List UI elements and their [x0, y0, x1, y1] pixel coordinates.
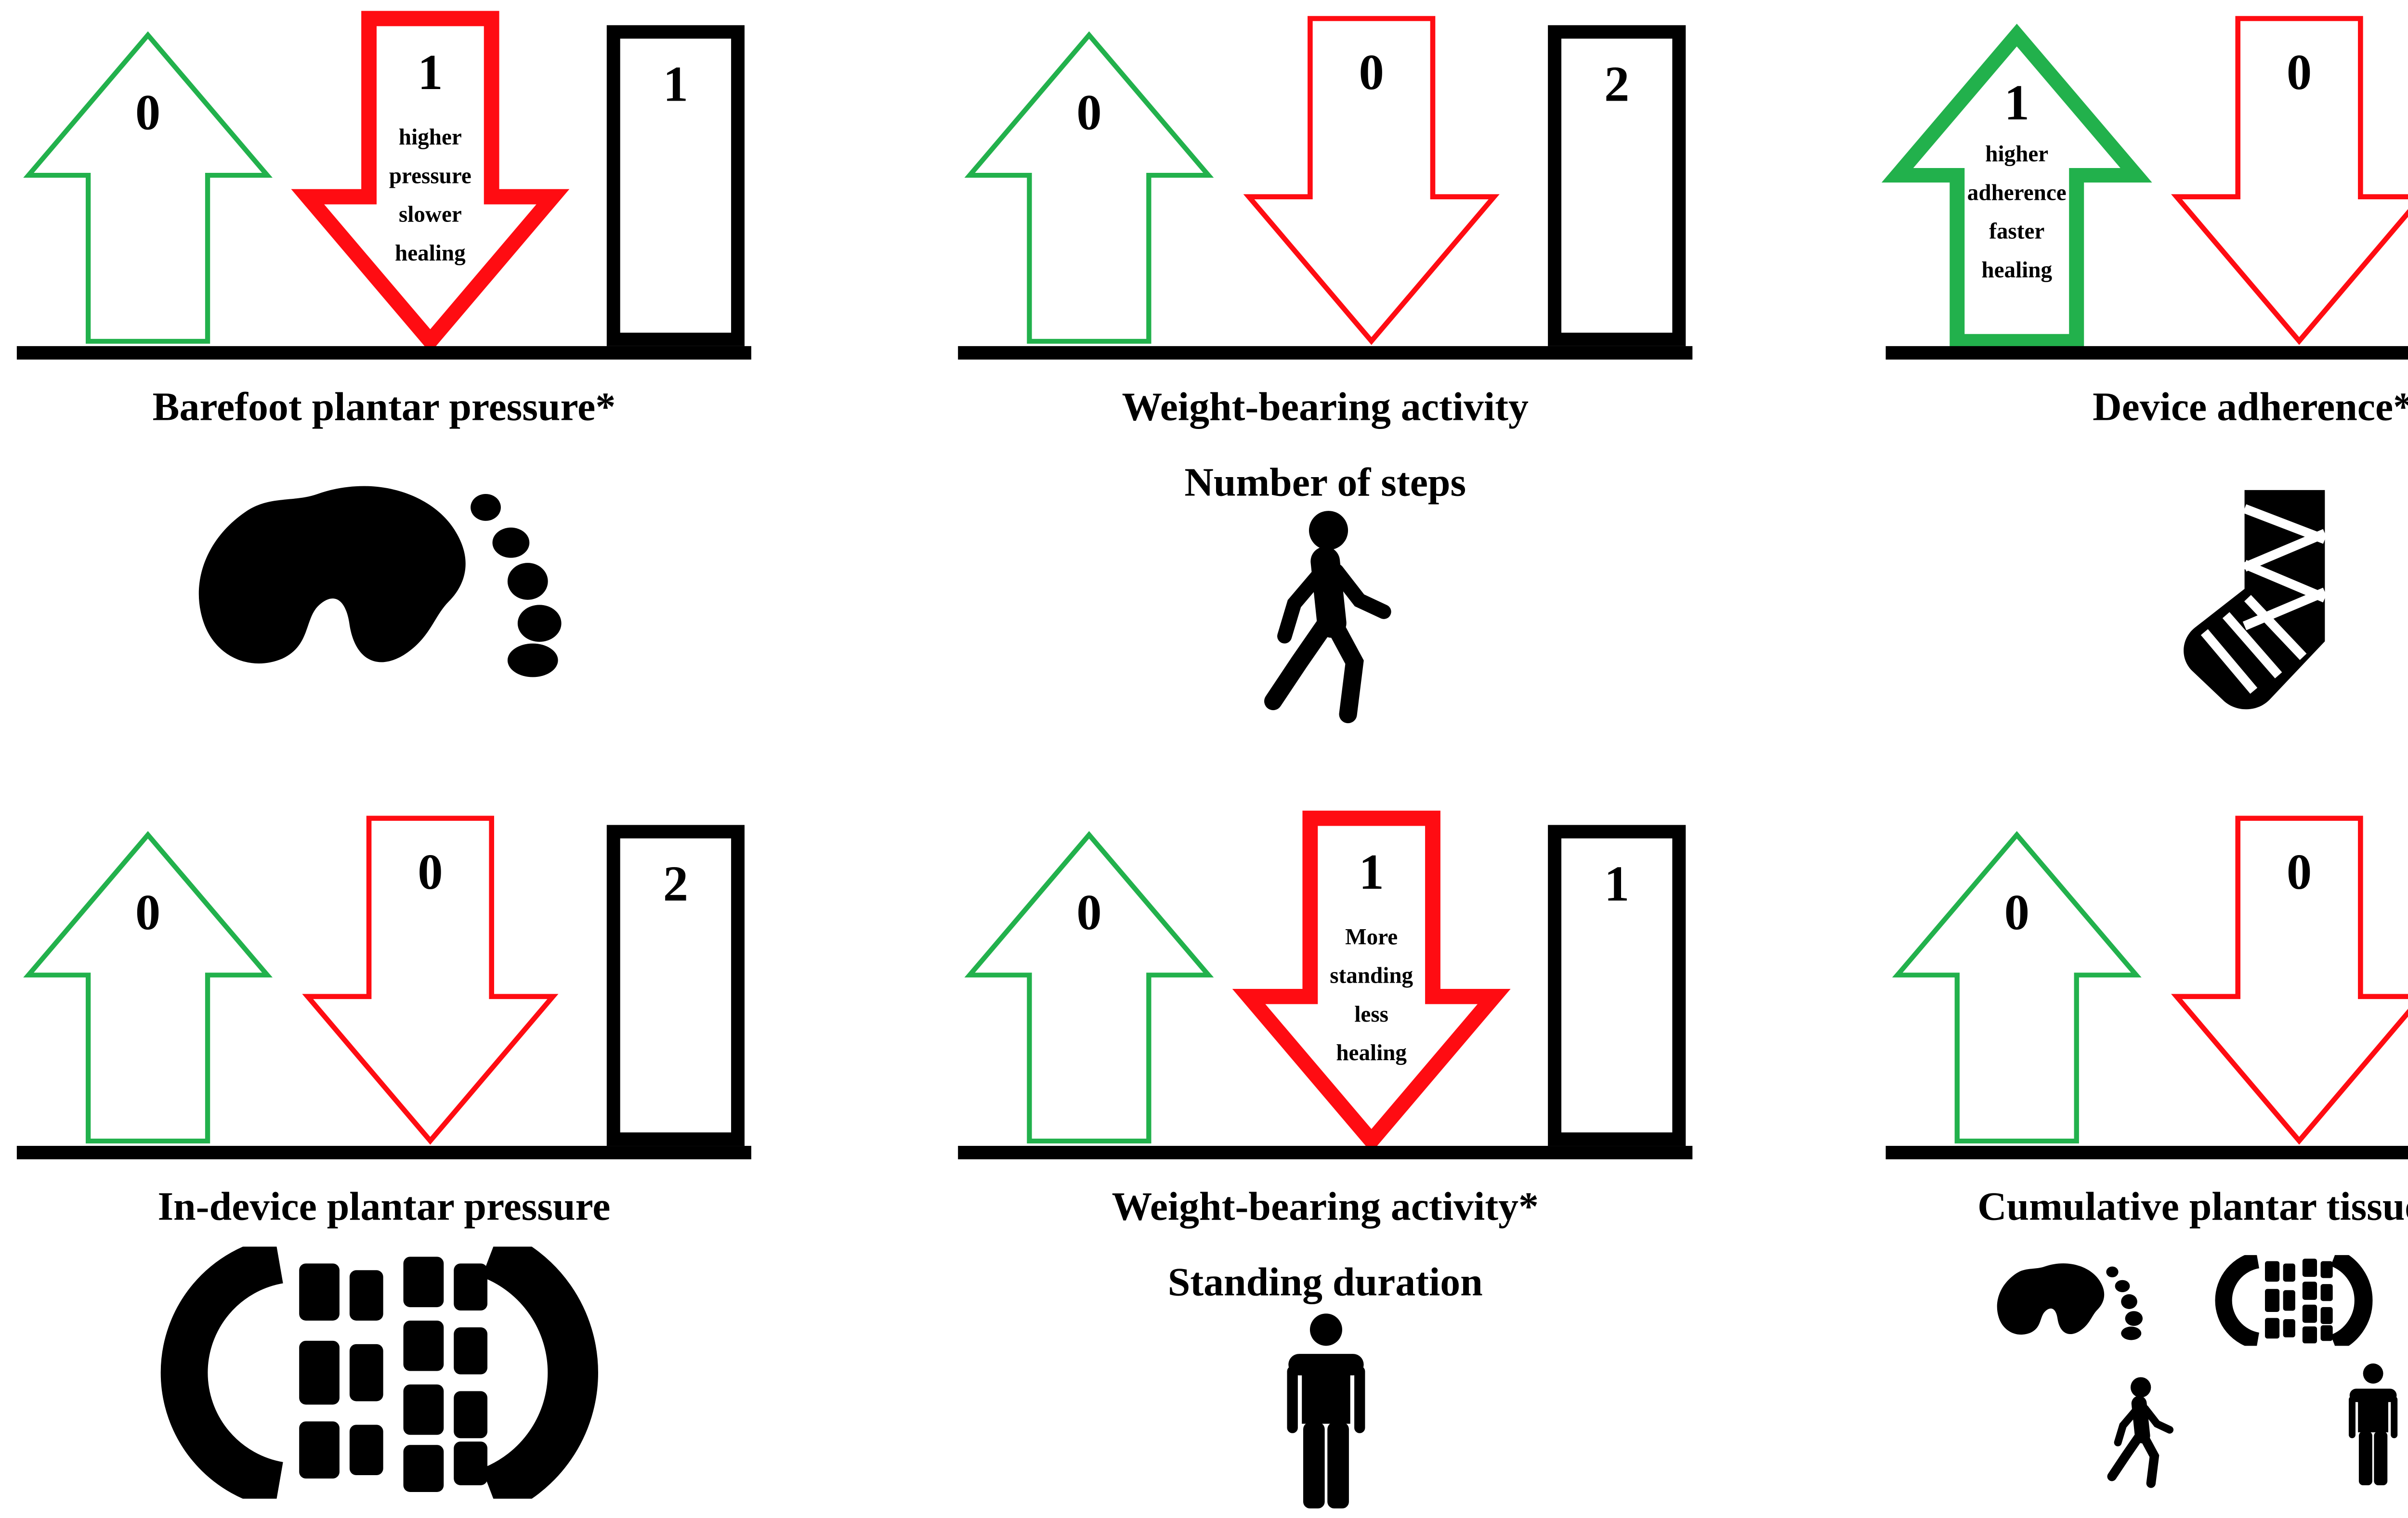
caption-line: In-device plantar pressure: [17, 1183, 751, 1233]
panel-weight-bearing-activity-standing: 0 1 More standing less healing 1 Weight-…: [958, 803, 1692, 1514]
caption-line: Barefoot plantar pressure*: [17, 383, 751, 434]
down-arrow-count: 1: [1243, 847, 1499, 901]
panel-caption: Cumulative plantar tissue stress: [1886, 1183, 2408, 1233]
up-arrow-count: 0: [24, 887, 272, 941]
better-healing-up-arrow: 0: [965, 830, 1213, 1146]
up-arrow-count: 0: [965, 87, 1213, 141]
shoe-print-icon: [2201, 1254, 2389, 1345]
note-line: adherence: [1893, 173, 2141, 211]
shoe-print-icon: [124, 1246, 645, 1498]
box-count: 2: [620, 858, 731, 912]
note-line: less: [1243, 995, 1499, 1033]
down-arrow-count: 0: [302, 847, 558, 901]
panel-barefoot-plantar-pressure: 0 1 higher pressure slower healing 1 Bar…: [17, 3, 751, 679]
arrow-zone: 1 higher adherence faster healing 0 1: [1886, 3, 2408, 360]
note-line: higher: [1893, 134, 2141, 173]
worse-healing-down-arrow: 0: [1243, 13, 1499, 346]
standing-person-icon: [1271, 1312, 1379, 1514]
no-association-box: 1: [607, 25, 745, 346]
activity-icons-row: [2099, 1362, 2407, 1489]
better-healing-up-arrow: 0: [1893, 830, 2141, 1146]
no-association-box: 2: [1548, 25, 1686, 346]
panel-cumulative-plantar-tissue-stress: 0 0 1 Cumulative plantar tissue stress: [1886, 803, 2408, 1489]
arrow-zone: 0 0 2: [17, 803, 751, 1159]
evidence-summary-figure: 0 1 higher pressure slower healing 1 Bar…: [0, 0, 2408, 1517]
up-arrow-icon: [1893, 830, 2141, 1146]
caption-line: Weight-bearing activity*: [958, 1183, 1692, 1233]
icon-area: [958, 509, 1692, 724]
worse-healing-down-arrow: 0: [2172, 13, 2408, 346]
box-count: 1: [1561, 858, 1672, 912]
up-arrow-count: 0: [1893, 887, 2141, 941]
panel-caption: In-device plantar pressure: [17, 1183, 751, 1233]
icon-area: [1886, 1243, 2408, 1489]
bandaged-foot-cast-icon: [2176, 484, 2330, 713]
note-line: healing: [302, 234, 558, 272]
up-arrow-note: higher adherence faster healing: [1893, 134, 2141, 289]
note-line: faster: [1893, 212, 2141, 250]
better-healing-up-arrow: 0: [24, 30, 272, 346]
no-association-box: 2: [607, 825, 745, 1146]
icon-area: [17, 1246, 751, 1498]
note-line: higher: [302, 117, 558, 156]
stress-source-icons-row: [1991, 1243, 2408, 1356]
down-arrow-count: 1: [302, 47, 558, 101]
no-association-box: 1: [1548, 825, 1686, 1146]
better-healing-up-arrow: 0: [965, 30, 1213, 346]
barefoot-print-icon: [186, 474, 581, 679]
icon-area: [1886, 484, 2408, 713]
better-healing-up-arrow: 1 higher adherence faster healing: [1893, 30, 2141, 346]
down-arrow-note: More standing less healing: [1243, 917, 1499, 1072]
note-line: healing: [1893, 250, 2141, 289]
panel-caption: Weight-bearing activity* Standing durati…: [958, 1183, 1692, 1309]
up-arrow-count: 0: [965, 887, 1213, 941]
baseline: [17, 346, 751, 360]
up-arrow-icon: [24, 30, 272, 346]
icon-area: [958, 1312, 1692, 1514]
baseline: [17, 1146, 751, 1159]
standing-person-icon: [2340, 1362, 2407, 1489]
panel-caption: Barefoot plantar pressure*: [17, 383, 751, 434]
down-arrow-count: 0: [1243, 47, 1499, 101]
arrow-zone: 0 1 higher pressure slower healing 1: [17, 3, 751, 360]
worse-healing-down-arrow: 1 higher pressure slower healing: [302, 13, 558, 346]
baseline: [958, 346, 1692, 360]
panel-device-adherence: 1 higher adherence faster healing 0 1 De…: [1886, 3, 2408, 713]
panel-caption: Weight-bearing activity Number of steps: [958, 383, 1692, 509]
better-healing-up-arrow: 0: [24, 830, 272, 1146]
down-arrow-note: higher pressure slower healing: [302, 117, 558, 272]
figure-canvas: 0 1 higher pressure slower healing 1 Bar…: [0, 0, 2408, 1518]
panel-in-device-plantar-pressure: 0 0 2 In-device plantar pressure: [17, 803, 751, 1499]
caption-line: Weight-bearing activity: [958, 383, 1692, 434]
caption-line: Number of steps: [958, 459, 1692, 509]
arrow-zone: 0 1 More standing less healing 1: [958, 803, 1692, 1159]
box-count: 2: [1561, 59, 1672, 113]
caption-line: Standing duration: [958, 1259, 1692, 1309]
up-arrow-icon: [965, 30, 1213, 346]
baseline: [958, 1146, 1692, 1159]
note-line: pressure: [302, 156, 558, 195]
caption-line: Device adherence*: [1886, 383, 2408, 434]
note-line: standing: [1243, 956, 1499, 995]
up-arrow-count: 0: [24, 87, 272, 141]
walking-person-icon: [2099, 1376, 2180, 1489]
note-line: healing: [1243, 1033, 1499, 1072]
arrow-zone: 0 0 1: [1886, 803, 2408, 1159]
up-arrow-icon: [965, 830, 1213, 1146]
panel-weight-bearing-activity-steps: 0 0 2 Weight-bearing activity Number of …: [958, 3, 1692, 724]
box-count: 1: [620, 59, 731, 113]
arrow-zone: 0 0 2: [958, 3, 1692, 360]
baseline: [1886, 1146, 2408, 1159]
panel-caption: Device adherence*: [1886, 383, 2408, 434]
down-arrow-count: 0: [2172, 47, 2408, 101]
down-arrow-count: 0: [2172, 847, 2408, 901]
icon-area: [17, 474, 751, 679]
worse-healing-down-arrow: 0: [302, 813, 558, 1146]
baseline: [1886, 346, 2408, 360]
walking-person-icon: [1248, 509, 1402, 724]
worse-healing-down-arrow: 0: [2172, 813, 2408, 1146]
caption-line: Cumulative plantar tissue stress: [1886, 1183, 2408, 1233]
barefoot-print-icon: [1991, 1259, 2151, 1341]
note-line: slower: [302, 195, 558, 234]
up-arrow-icon: [24, 830, 272, 1146]
note-line: More: [1243, 917, 1499, 956]
up-arrow-count: 1: [1893, 78, 2141, 131]
worse-healing-down-arrow: 1 More standing less healing: [1243, 813, 1499, 1146]
